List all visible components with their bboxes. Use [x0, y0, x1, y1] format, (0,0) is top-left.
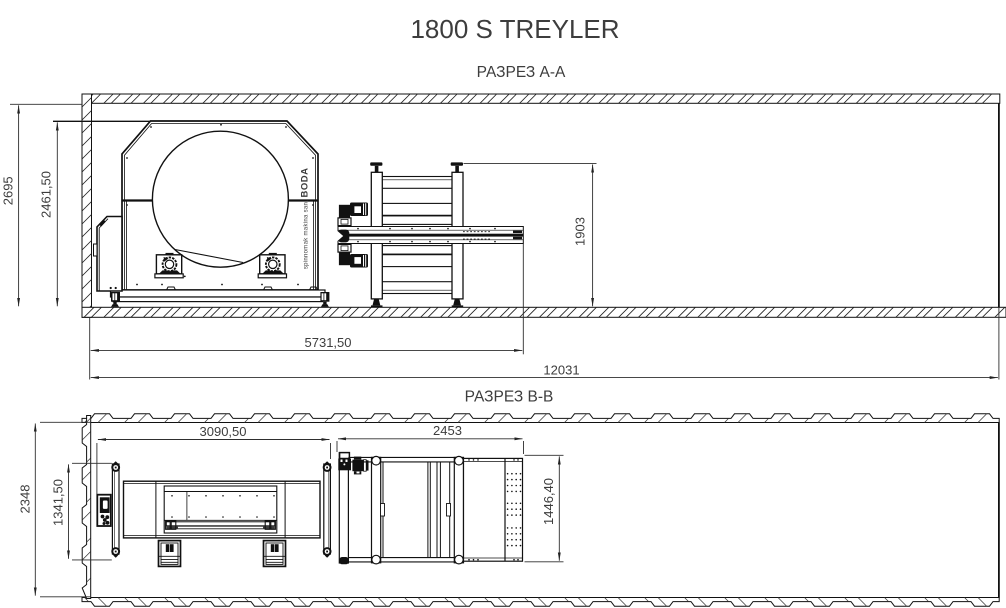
- svg-text:spinnomak makina san.: spinnomak makina san.: [304, 200, 310, 269]
- svg-text:2695: 2695: [1, 176, 16, 205]
- svg-text:1903: 1903: [573, 217, 588, 246]
- svg-text:BODA: BODA: [300, 168, 311, 198]
- svg-text:2348: 2348: [18, 485, 33, 514]
- svg-text:2453: 2453: [433, 423, 462, 438]
- svg-text:3090,50: 3090,50: [200, 424, 247, 439]
- svg-text:12031: 12031: [543, 363, 579, 378]
- svg-text:2461,50: 2461,50: [38, 171, 53, 218]
- svg-text:1446,40: 1446,40: [541, 478, 556, 525]
- svg-text:5731,50: 5731,50: [305, 335, 352, 350]
- svg-text:1341,50: 1341,50: [50, 479, 65, 526]
- svg-text:РАЗРЕЗ A-A: РАЗРЕЗ A-A: [477, 64, 566, 81]
- svg-text:РАЗРЕЗ B-B: РАЗРЕЗ B-B: [465, 389, 554, 406]
- svg-text:1800 S TREYLER: 1800 S TREYLER: [410, 14, 619, 44]
